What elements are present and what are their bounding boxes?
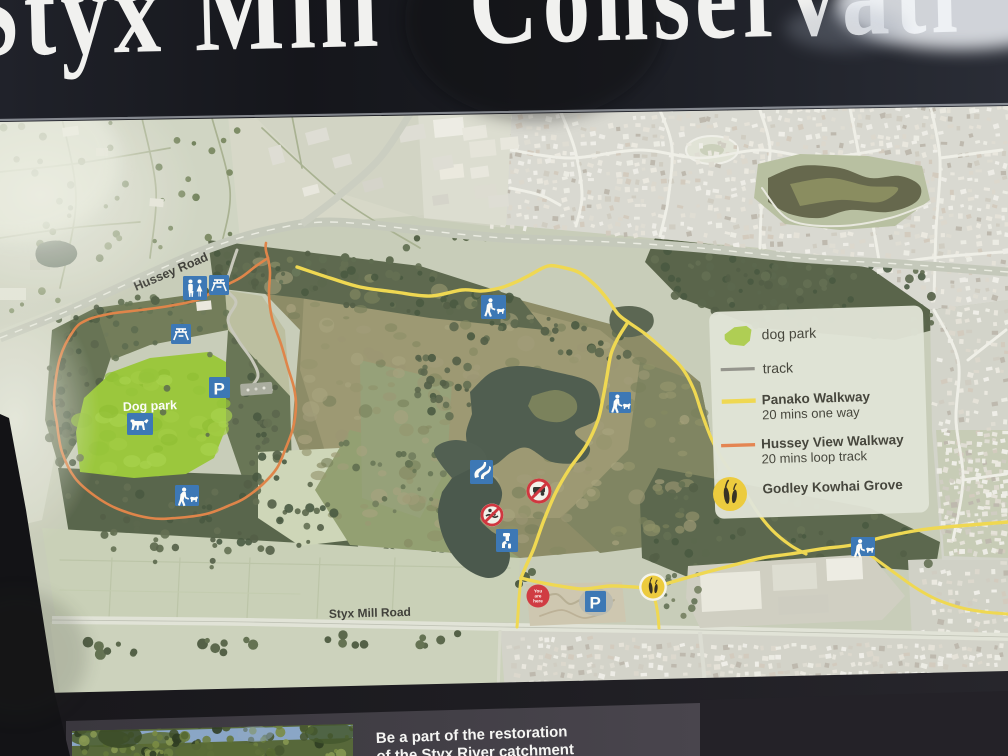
svg-text:Styx Mill: Styx Mill	[0, 0, 385, 83]
